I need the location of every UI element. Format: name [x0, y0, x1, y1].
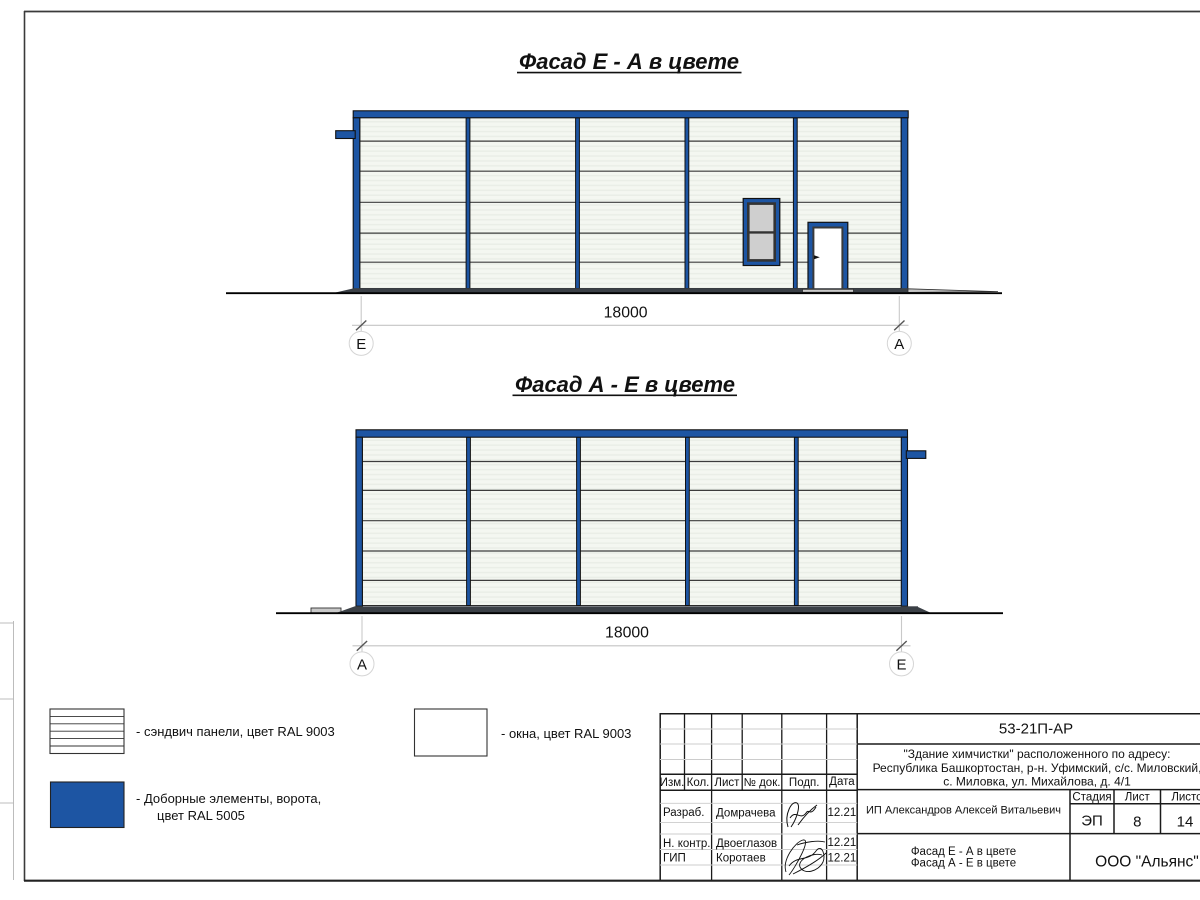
svg-text:Изм.: Изм. [660, 777, 685, 789]
svg-text:Республика Башкортостан, р-н.: Республика Башкортостан, р-н. Уфимский, … [873, 761, 1200, 775]
svg-text:Н. контр.: Н. контр. [663, 838, 710, 850]
svg-text:Разраб.: Разраб. [663, 807, 704, 819]
svg-text:Листов: Листов [1171, 792, 1200, 804]
svg-text:А: А [894, 336, 904, 353]
svg-text:ЭП: ЭП [1081, 813, 1103, 830]
svg-text:с. Миловка, ул. Михайлова, д.: с. Миловка, ул. Михайлова, д. 4/1 [943, 775, 1131, 789]
svg-text:Стадия: Стадия [1072, 792, 1111, 804]
svg-text:№ док.: № док. [744, 777, 781, 789]
svg-text:12.21: 12.21 [828, 837, 857, 849]
svg-text:Е: Е [356, 336, 366, 353]
svg-text:8: 8 [1133, 814, 1141, 831]
svg-text:18000: 18000 [604, 305, 648, 322]
svg-text:Двоеглазов: Двоеглазов [716, 838, 777, 850]
svg-text:Кол.: Кол. [687, 777, 710, 789]
svg-text:А: А [357, 656, 367, 673]
svg-text:ИП Александров Алексей Виталье: ИП Александров Алексей Витальевич [866, 805, 1061, 817]
svg-text:Домрачева: Домрачева [716, 808, 776, 820]
svg-text:цвет RAL 5005: цвет RAL 5005 [157, 808, 245, 823]
svg-text:53-21П-АР: 53-21П-АР [999, 721, 1073, 738]
svg-text:ГИП: ГИП [663, 853, 686, 865]
svg-text:12.21: 12.21 [828, 853, 857, 865]
svg-text:Коротаев: Коротаев [716, 853, 766, 865]
svg-text:Фасад Е - А в цвете: Фасад Е - А в цвете [519, 49, 739, 74]
svg-text:- окна, цвет RAL 9003: - окна, цвет RAL 9003 [501, 726, 631, 741]
svg-text:Лист: Лист [714, 777, 740, 789]
svg-text:Лист: Лист [1125, 792, 1151, 804]
svg-text:ООО "Альянс": ООО "Альянс" [1095, 853, 1199, 870]
svg-text:Фасад А - Е в цвете: Фасад А - Е в цвете [515, 372, 735, 397]
svg-text:- Доборные элементы, ворота,: - Доборные элементы, ворота, [136, 791, 321, 806]
svg-text:Е: Е [896, 656, 906, 673]
svg-text:- сэндвич панели, цвет RAL 900: - сэндвич панели, цвет RAL 9003 [136, 724, 335, 739]
svg-text:Фасад Е - А в цвете: Фасад Е - А в цвете [911, 846, 1016, 858]
svg-text:"Здание химчистки" расположенн: "Здание химчистки" расположенного по адр… [903, 747, 1170, 761]
svg-text:12.21: 12.21 [828, 807, 857, 819]
svg-text:18000: 18000 [605, 624, 649, 641]
svg-text:Дата: Дата [829, 776, 855, 788]
svg-text:Фасад А - Е в цвете: Фасад А - Е в цвете [911, 858, 1016, 870]
svg-text:14: 14 [1177, 814, 1194, 831]
svg-text:Подп.: Подп. [789, 777, 820, 789]
